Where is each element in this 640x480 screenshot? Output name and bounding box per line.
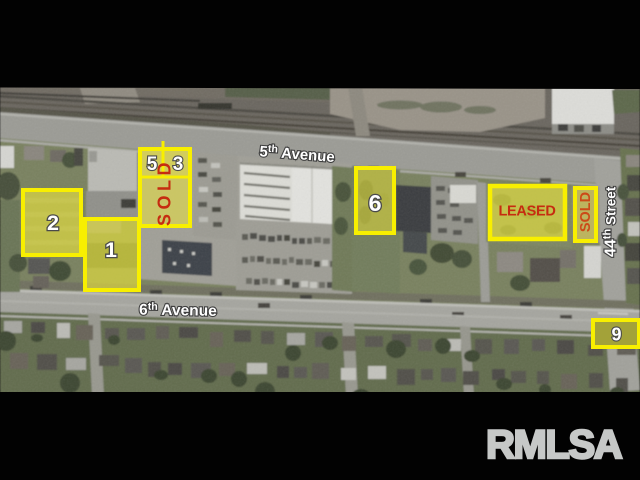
svg-text:2: 2 [47, 211, 59, 235]
svg-text:1: 1 [105, 238, 117, 262]
svg-text:44th Street: 44th Street [602, 186, 620, 257]
svg-text:9: 9 [611, 325, 621, 345]
svg-text:6: 6 [368, 190, 381, 216]
svg-text:SOLD: SOLD [578, 192, 594, 232]
svg-text:LEASED: LEASED [498, 204, 555, 220]
svg-text:RMLSA: RMLSA [486, 423, 622, 467]
svg-text:SOLD: SOLD [155, 158, 175, 226]
